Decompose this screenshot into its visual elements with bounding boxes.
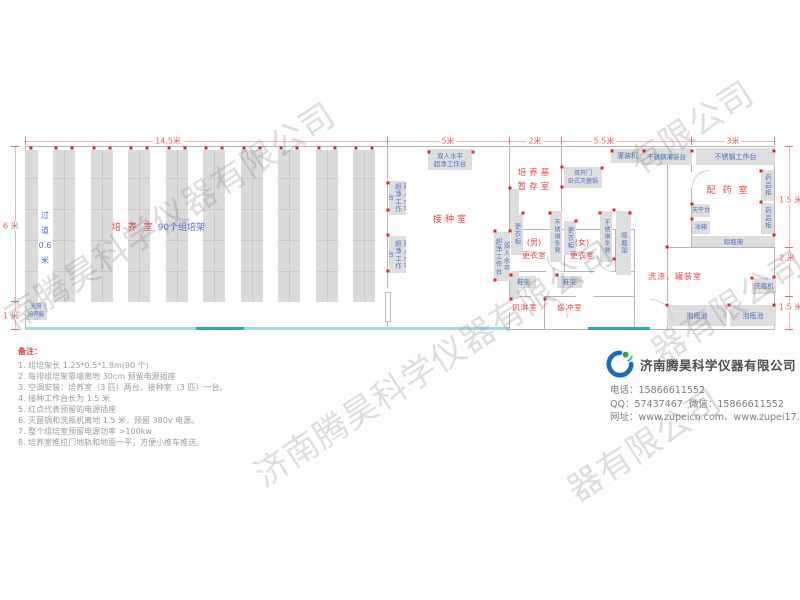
outlet-dot bbox=[773, 150, 776, 153]
company-name: 济南腾昊科学仪器有限公司 bbox=[640, 355, 796, 374]
sliding-door bbox=[588, 327, 650, 330]
outlet-dot bbox=[146, 147, 149, 150]
outlet-dot bbox=[760, 201, 763, 204]
outlet-dot bbox=[428, 151, 431, 154]
wall bbox=[561, 271, 595, 272]
outlet-dot bbox=[472, 151, 475, 154]
outlet-dot bbox=[296, 147, 299, 150]
equipment-box: 不锈钢条凳 bbox=[550, 211, 562, 262]
outlet-dot bbox=[760, 170, 763, 173]
wall bbox=[544, 296, 545, 330]
company-qq-wechat: QQ：57437467 微信：15866611552 bbox=[610, 398, 800, 412]
equipment-box: 冰箱 bbox=[692, 221, 710, 234]
outlet-dot bbox=[333, 147, 336, 150]
equipment-box: 双人水平超净工作台 bbox=[494, 232, 510, 281]
equipment-box: 鞋架 bbox=[511, 276, 536, 288]
equipment-box: 双人水平超净工作台 bbox=[389, 236, 406, 273]
outlet-dot bbox=[509, 230, 512, 233]
outlet-dot bbox=[167, 147, 170, 150]
dim-tick bbox=[691, 137, 692, 145]
note-item: 1. 组培架长 1.25*0.5*1.8m(90 个) bbox=[18, 360, 227, 371]
note-item: 4. 接种工作台长为 1.5 米 bbox=[18, 393, 227, 404]
culture-rack bbox=[53, 150, 75, 302]
wall bbox=[667, 163, 668, 247]
outlet-dot bbox=[205, 147, 208, 150]
dim-tick bbox=[509, 137, 510, 145]
equipment-box: 灌装机 bbox=[611, 149, 644, 163]
dim-tick bbox=[11, 329, 19, 330]
dim-tick bbox=[387, 137, 388, 145]
outlet-dot bbox=[575, 220, 578, 223]
note-item: 8. 培养室推拉门地轨和地面一平，方便小推车推送。 bbox=[18, 437, 227, 448]
wall bbox=[594, 296, 635, 297]
culture-rack bbox=[278, 150, 300, 302]
outlet-dot bbox=[387, 182, 390, 185]
notes-title: 备注： bbox=[18, 346, 227, 357]
outlet-dot bbox=[494, 279, 497, 282]
room-label: 风淋室 bbox=[508, 302, 542, 314]
outlet-dot bbox=[130, 147, 133, 150]
equipment-box: 药品柜 bbox=[761, 170, 774, 201]
outlet-dot bbox=[183, 147, 186, 150]
equipment-box: 光照培养箱 bbox=[25, 302, 47, 320]
sliding-door bbox=[196, 327, 244, 330]
dim-label: 2米 bbox=[526, 137, 543, 146]
culture-rack bbox=[241, 150, 263, 302]
outlet-dot bbox=[280, 147, 283, 150]
dim-tick bbox=[785, 329, 793, 330]
equipment-box: 泡瓶池 bbox=[730, 305, 776, 326]
outlet-dot bbox=[509, 187, 512, 190]
outlet-dot bbox=[773, 304, 776, 307]
wall bbox=[25, 146, 775, 147]
outlet-dot bbox=[71, 147, 74, 150]
equipment-box: 晾瓶架 bbox=[616, 211, 631, 275]
equipment-box: 洗瓶机 bbox=[752, 278, 776, 294]
dim-tick bbox=[25, 137, 26, 145]
outlet-dot bbox=[387, 270, 390, 273]
outlet-dot bbox=[510, 274, 513, 277]
company-logo-icon bbox=[606, 350, 634, 378]
outlet-dot bbox=[108, 147, 111, 150]
outlet-dot bbox=[773, 276, 776, 279]
door-leaf bbox=[385, 292, 391, 322]
note-item: 7. 整个组培室预留电源功率 >100kw bbox=[18, 426, 227, 437]
notes-block: 备注： 1. 组培架长 1.25*0.5*1.8m(90 个)2. 每排组培架靠… bbox=[18, 346, 227, 448]
dim-label: 6 米 bbox=[1, 222, 21, 231]
dim-label: 1.5 米 bbox=[777, 303, 800, 312]
note-item: 5. 红点代表预留的电源插座 bbox=[18, 404, 227, 415]
outlet-dot bbox=[387, 209, 390, 212]
culture-room-label: 培 养 室 90个组培架 bbox=[112, 220, 205, 233]
dim-label: 1.5 米 bbox=[777, 196, 800, 205]
company-block: 济南腾昊科学仪器有限公司 电话：15866611552 QQ：57437467 … bbox=[606, 350, 800, 425]
outlet-dot bbox=[561, 186, 564, 189]
dim-label: 14.5米 bbox=[153, 137, 183, 146]
equipment-box: 双人水平超净工作台 bbox=[389, 181, 406, 215]
dim-line-top bbox=[25, 141, 775, 142]
outlet-dot bbox=[387, 234, 390, 237]
outlet-dot bbox=[556, 274, 559, 277]
outlet-dot bbox=[92, 147, 95, 150]
outlet-dot bbox=[510, 298, 513, 301]
outlet-dot bbox=[355, 147, 358, 150]
outlet-dot bbox=[611, 150, 614, 153]
equipment-box: 晾瓶架 bbox=[692, 236, 775, 247]
equipment-box: 双人水平超净工作台 bbox=[428, 149, 472, 170]
floor-track bbox=[25, 327, 509, 330]
room-label: (女)更衣室 bbox=[566, 236, 598, 262]
dim-tick bbox=[785, 146, 793, 147]
dim-label: 2 米 bbox=[777, 254, 797, 263]
outlet-dot bbox=[258, 147, 261, 150]
outlet-dot bbox=[371, 147, 374, 150]
door-arc bbox=[547, 256, 563, 272]
dim-tick bbox=[774, 137, 775, 145]
notes-list: 1. 组培架长 1.25*0.5*1.8m(90 个)2. 每排组培架靠墙离地 … bbox=[18, 360, 227, 448]
outlet-dot bbox=[561, 166, 564, 169]
equipment-box: 药品柜 bbox=[761, 203, 774, 234]
equipment-box: 不锈钢灌装台 bbox=[641, 148, 692, 165]
equipment-box: 双开门卧式灭菌锅 bbox=[564, 167, 602, 188]
outlet-dot bbox=[728, 304, 731, 307]
wall bbox=[634, 229, 635, 330]
note-item: 3. 空调安装：培养室（3 匹）两台，接种室（3 匹）一台。 bbox=[18, 382, 227, 393]
outlet-dot bbox=[549, 212, 552, 215]
outlet-dot bbox=[242, 147, 245, 150]
dim-label: 5米 bbox=[439, 137, 456, 146]
room-label: 培养基暂存室 bbox=[512, 166, 558, 194]
equipment-box: 泡瓶池 bbox=[667, 305, 727, 326]
outlet-dot bbox=[691, 150, 694, 153]
outlet-dot bbox=[613, 209, 616, 212]
dim-tick bbox=[11, 146, 19, 147]
wall bbox=[387, 146, 388, 288]
equipment-box: 不锈钢条凳 bbox=[600, 211, 612, 262]
outlet-dot bbox=[522, 212, 525, 215]
dim-tick bbox=[785, 247, 793, 248]
company-website: 网址：www.zupeicn.com、www.zupei17.com bbox=[610, 411, 800, 425]
outlet-dot bbox=[629, 212, 632, 215]
dim-tick bbox=[561, 137, 562, 145]
dim-label: 5.5米 bbox=[592, 137, 617, 146]
outlet-dot bbox=[643, 150, 646, 153]
room-label: 洗涤、罐装室 bbox=[646, 271, 704, 283]
note-item: 2. 每排组培架靠墙离地 30cm 预留电源插座 bbox=[18, 371, 227, 382]
equipment-box: 不锈钢工作台 bbox=[696, 148, 775, 165]
outlet-dot bbox=[691, 218, 694, 221]
dim-label: 3米 bbox=[724, 137, 741, 146]
outlet-dot bbox=[494, 230, 497, 233]
wall bbox=[509, 312, 510, 330]
culture-rack bbox=[316, 150, 338, 302]
dim-tick bbox=[11, 301, 19, 302]
dim-tick bbox=[785, 296, 793, 297]
outlet-dot bbox=[601, 167, 604, 170]
equipment-box: 天平台 bbox=[692, 204, 710, 217]
door-arc bbox=[547, 297, 568, 318]
company-phone: 电话：15866611552 bbox=[610, 384, 800, 398]
room-label: (男)更衣室 bbox=[518, 236, 550, 262]
room-label: 接种室 bbox=[428, 214, 474, 226]
note-item: 6. 灭菌锅和洗瓶机离地 1.5 米，预留 380v 电源。 bbox=[18, 415, 227, 426]
door-arc bbox=[597, 256, 613, 272]
equipment-box: 鞋架 bbox=[557, 276, 582, 288]
floor-plan-canvas: 双人水平超净工作台双人水平超净工作台双人水平超净工作台双人水平超净工作台双开门卧… bbox=[0, 0, 800, 600]
culture-rack bbox=[203, 150, 225, 302]
outlet-dot bbox=[30, 147, 33, 150]
outlet-dot bbox=[317, 147, 320, 150]
culture-rack bbox=[91, 150, 113, 302]
dim-label: 1 米 bbox=[1, 312, 21, 321]
outlet-dot bbox=[773, 234, 776, 237]
wall bbox=[667, 247, 775, 248]
outlet-dot bbox=[221, 147, 224, 150]
dim-line-left bbox=[15, 146, 16, 330]
door-arc bbox=[692, 170, 709, 187]
outlet-dot bbox=[751, 277, 754, 280]
door-arc bbox=[650, 299, 673, 322]
outlet-dot bbox=[599, 212, 602, 215]
outlet-dot bbox=[666, 246, 669, 249]
outlet-dot bbox=[691, 203, 694, 206]
aisle-label: 过道0.6米 bbox=[37, 208, 53, 268]
culture-rack bbox=[353, 150, 375, 302]
outlet-dot bbox=[55, 147, 58, 150]
